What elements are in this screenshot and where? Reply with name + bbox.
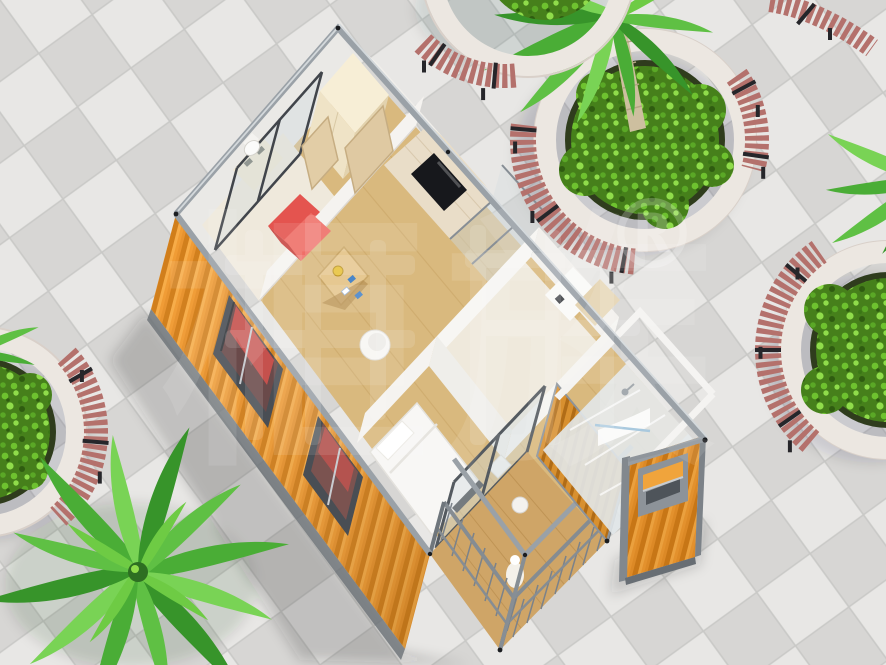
watermark: 柜族 ®: [161, 179, 729, 504]
render-scene: 柜族 ®: [0, 0, 886, 665]
registered-mark: ®: [604, 179, 700, 291]
